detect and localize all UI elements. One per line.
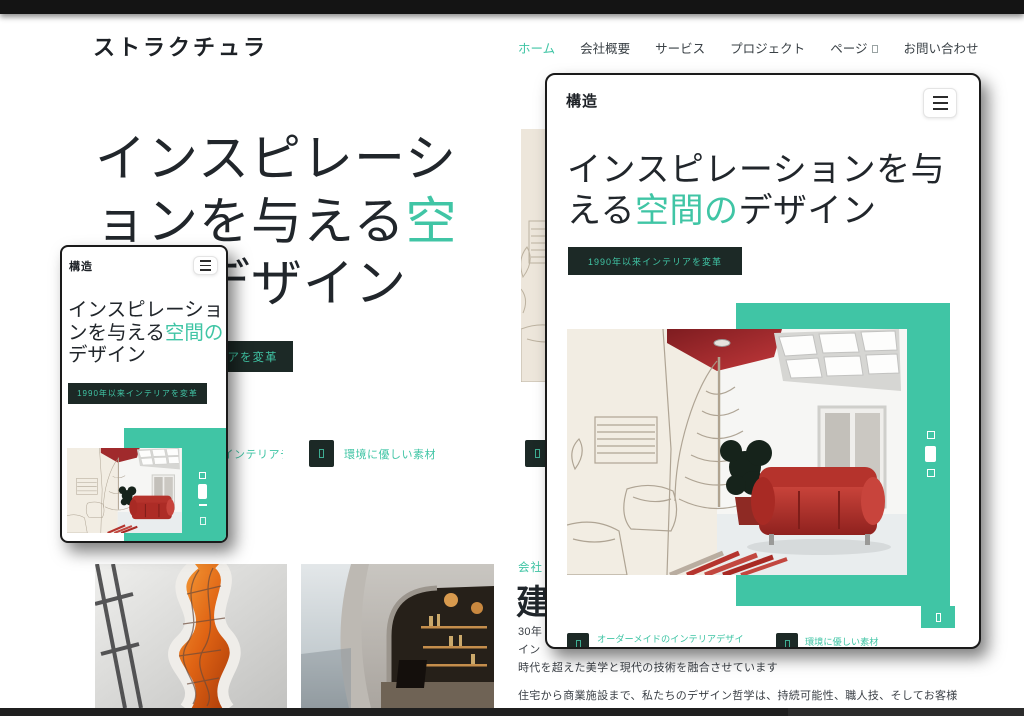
nav-contact[interactable]: お問い合わせ: [903, 38, 978, 57]
hero-headline-pre: インスピレーションを与える: [95, 130, 457, 250]
pagination-dot-active[interactable]: [925, 446, 936, 462]
hamburger-menu-button[interactable]: [193, 256, 218, 275]
pagination-dash: [199, 504, 207, 506]
about-paragraph-line: 30年: [518, 623, 542, 639]
headline-post: デザイン: [738, 192, 876, 230]
nav-home[interactable]: ホーム: [518, 38, 555, 57]
about-paragraph-line: 時代を超えた美学と現代の技術を融合させています: [518, 659, 778, 675]
placeholder-glyph-icon: [319, 449, 324, 458]
arrow-glyph-icon: [200, 517, 206, 525]
pagination-dot[interactable]: [927, 469, 935, 477]
hamburger-bar: [200, 260, 211, 262]
feature-label-custom-design: オーダーメイドのインテリアデザイン: [597, 633, 747, 649]
main-nav: ホーム 会社概要 サービス プロジェクト ページ お問い合わせ: [518, 38, 978, 57]
chevron-down-icon: [872, 45, 878, 53]
nav-pages[interactable]: ページ: [830, 38, 878, 57]
hero-image-sketch-to-photo: [67, 448, 182, 533]
hero-headline-post: デザイン: [199, 255, 407, 312]
headline-accent: 空間の: [165, 322, 224, 344]
phone-site-logo[interactable]: 構造: [69, 258, 93, 274]
tablet-hero-badge: 1990年以来インテリアを変革: [568, 247, 742, 275]
phone-mockup: 構造 インスピレーションを与える空間のデザイン 1990年以来インテリアを変革: [60, 245, 228, 543]
nav-about[interactable]: 会社概要: [580, 38, 630, 57]
feature-icon-custom-design: [567, 633, 589, 649]
arch-interior-art: [301, 564, 494, 708]
hero-image-sketch-to-photo: [567, 329, 907, 575]
carousel-pagination: [198, 472, 207, 525]
gallery-photo-arch-interior: [301, 564, 494, 708]
feature-label-eco-materials: 環境に優しい素材: [805, 636, 915, 649]
hamburger-bar: [933, 96, 948, 98]
about-label: 会社: [518, 559, 543, 575]
arrow-glyph-icon: [936, 613, 941, 622]
headline-post: デザイン: [68, 344, 146, 366]
about-paragraph-line: 住宅から商業施設まで、私たちのデザイン哲学は、持続可能性、職人技、そしてお客様: [518, 687, 958, 703]
hamburger-bar: [200, 265, 211, 267]
screenshot-stage: ストラクチュラ ホーム 会社概要 サービス プロジェクト ページ お問い合わせ …: [0, 0, 1024, 716]
hamburger-bar: [933, 102, 948, 104]
tablet-mockup: 構造 インスピレーションを与える空間のデザイン 1990年以来インテリアを変革: [545, 73, 981, 649]
phone-hero-headline: インスピレーションを与える空間のデザイン: [68, 299, 228, 369]
carousel-pagination: [925, 431, 936, 477]
nav-pages-label: ページ: [830, 42, 867, 56]
nav-projects[interactable]: プロジェクト: [730, 38, 805, 57]
tablet-site-logo[interactable]: 構造: [566, 90, 598, 111]
feature-label-eco-materials: 環境に優しい素材: [344, 446, 454, 461]
placeholder-glyph-icon: [785, 640, 790, 649]
scroll-down-button[interactable]: [921, 606, 955, 628]
tablet-hero-headline: インスピレーションを与える空間のデザイン: [567, 150, 961, 234]
about-paragraph-line: イン: [518, 641, 541, 657]
gallery-photo-orange-wave: [95, 564, 287, 708]
interior-scene: [67, 448, 182, 533]
headline-accent: 空間の: [635, 192, 739, 230]
phone-hero-badge: 1990年以来インテリアを変革: [68, 383, 207, 404]
pagination-dot-active[interactable]: [198, 484, 207, 499]
interior-scene: [567, 329, 907, 575]
placeholder-glyph-icon: [576, 640, 581, 649]
pagination-dot[interactable]: [927, 431, 935, 439]
placeholder-glyph-icon: [535, 449, 540, 458]
browser-bottom-bar-segment: [788, 708, 1024, 716]
hamburger-bar: [200, 269, 211, 271]
hamburger-menu-button[interactable]: [923, 88, 957, 118]
feature-icon-eco-materials: [309, 440, 334, 467]
feature-icon-eco-materials: [776, 633, 798, 649]
site-logo[interactable]: ストラクチュラ: [93, 30, 268, 62]
orange-wave-art: [95, 564, 287, 708]
browser-top-bar: [0, 0, 1024, 14]
hamburger-bar: [933, 108, 948, 110]
pagination-dot[interactable]: [199, 472, 206, 479]
nav-services[interactable]: サービス: [655, 38, 705, 57]
